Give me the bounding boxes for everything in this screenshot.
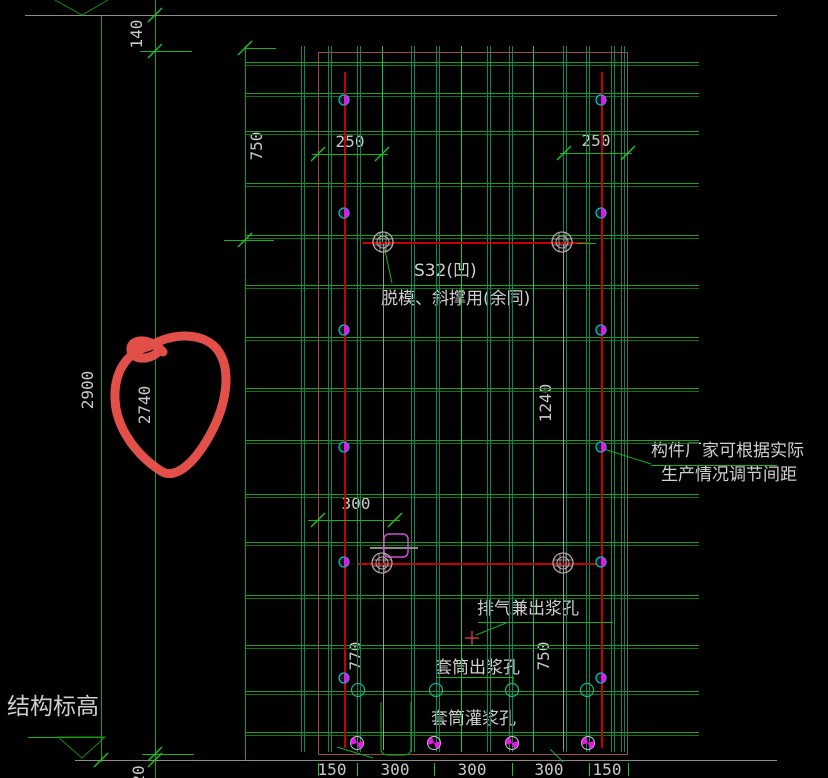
bottom-elevation-triangle-icon [58,737,105,758]
drawing-canvas: 2900 2740 140 140 20 750 1240 770 750 25… [0,0,828,778]
grout-sleeve-icon [376,557,388,569]
dimension-tick-diagonal [621,146,635,160]
grout-sleeve-icon [557,557,569,569]
spider-target-icon [506,737,512,745]
grout-sleeve-icon [553,553,573,573]
grout-sleeve-icon [372,553,392,573]
vent-circle-icon [352,684,365,697]
grout-sleeve-icon [377,236,389,248]
leader-lines [337,246,651,762]
spider-target-icon [512,741,518,749]
dimension-tick-diagonal [238,41,252,55]
top-elevation-triangle-icon [55,0,108,15]
spider-target-icon [357,741,363,749]
spider-target-icon [434,741,440,749]
spider-target-icon [588,741,594,749]
dimension-tick-diagonal [375,147,389,161]
grout-sleeve-icon [552,232,572,252]
dimension-tick-diagonal [148,747,162,761]
dimension-tick-diagonal [311,513,325,527]
dimension-tick-diagonal [238,233,252,247]
spider-target-icon [428,737,434,745]
dimension-tick-diagonal [311,147,325,161]
rebar-hook [381,702,411,755]
dimension-tick-diagonal [94,753,108,767]
dimension-tick-diagonal [148,44,162,58]
spider-target-icon [351,737,357,745]
vent-circle-icon [506,684,519,697]
dimension-tick-diagonal [148,753,162,767]
freehand-circle-annotation [115,336,226,474]
vent-hole-cross-icon [465,631,479,645]
symbol-overlay [0,0,828,778]
spider-target-icon [582,737,588,745]
grout-sleeve-icon [373,232,393,252]
vent-circle-icon [581,684,594,697]
dimension-tick-diagonal [388,513,402,527]
dimension-tick-diagonal [148,8,162,22]
dimension-tick-diagonal [557,146,571,160]
vent-circle-icon [430,684,443,697]
grout-sleeve-icon [556,236,568,248]
lifting-insert-box-icon [384,534,408,557]
